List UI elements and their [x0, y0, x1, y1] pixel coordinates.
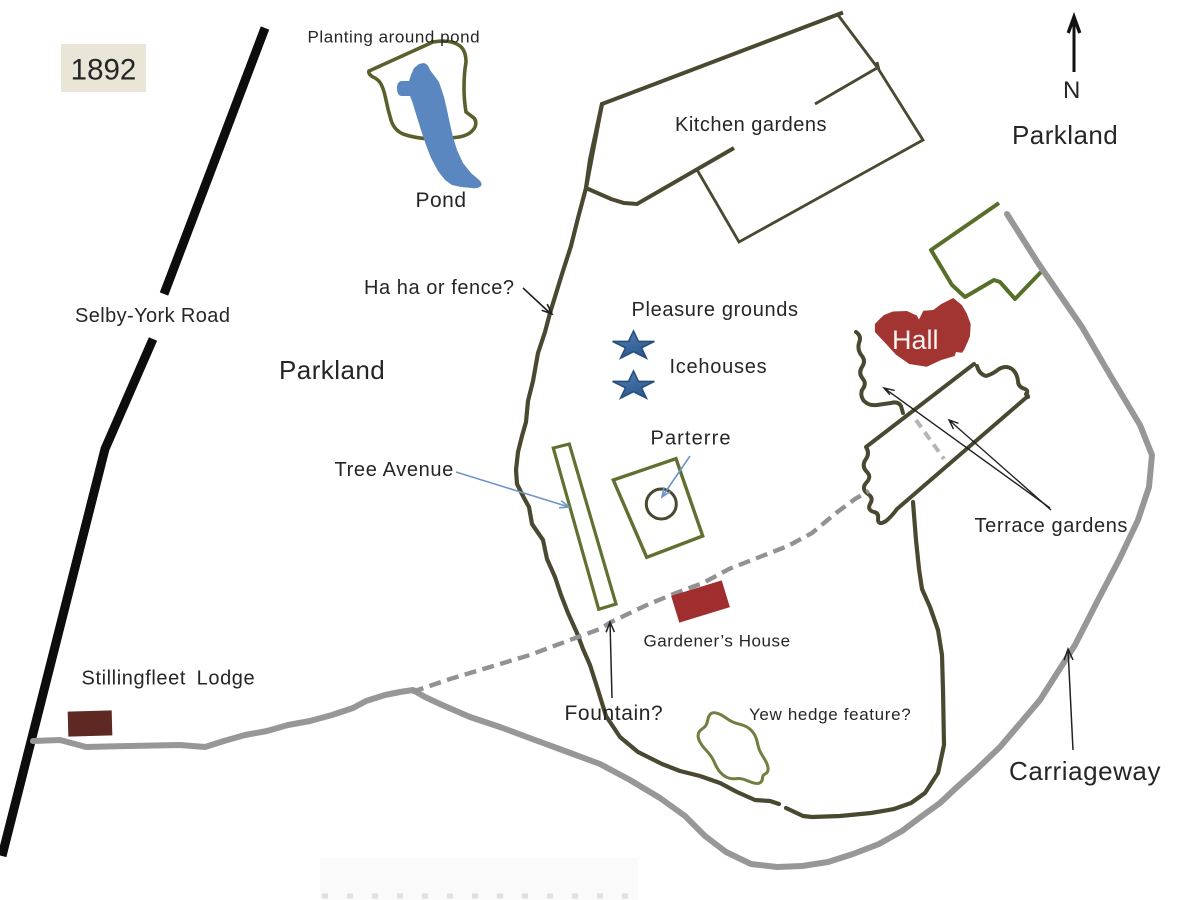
svg-text:Hall: Hall [892, 325, 939, 355]
svg-text:Pleasure grounds: Pleasure grounds [632, 299, 799, 321]
svg-text:Gardener’s House: Gardener’s House [644, 632, 791, 651]
svg-text:Parterre: Parterre [651, 428, 732, 450]
svg-text:Parkland: Parkland [1012, 120, 1118, 150]
svg-text:Planting around pond: Planting around pond [308, 28, 481, 47]
svg-text:Kitchen gardens: Kitchen gardens [675, 114, 827, 136]
svg-text:N: N [1063, 77, 1080, 104]
svg-text:Parkland: Parkland [279, 355, 385, 385]
svg-text:Tree Avenue: Tree Avenue [335, 459, 454, 481]
svg-text:Icehouses: Icehouses [670, 356, 768, 378]
svg-text:Carriageway: Carriageway [1009, 756, 1161, 786]
svg-text:Pond: Pond [416, 189, 467, 212]
svg-text:1892: 1892 [71, 54, 137, 87]
svg-text:Selby-York Road: Selby-York Road [75, 305, 230, 327]
svg-text:Fountain?: Fountain? [565, 702, 664, 725]
svg-text:Terrace gardens: Terrace gardens [975, 515, 1129, 537]
svg-text:Stillingfleet Lodge: Stillingfleet Lodge [82, 668, 256, 690]
svg-text:Yew hedge feature?: Yew hedge feature? [749, 705, 911, 724]
svg-text:Ha ha or fence?: Ha ha or fence? [364, 277, 515, 299]
